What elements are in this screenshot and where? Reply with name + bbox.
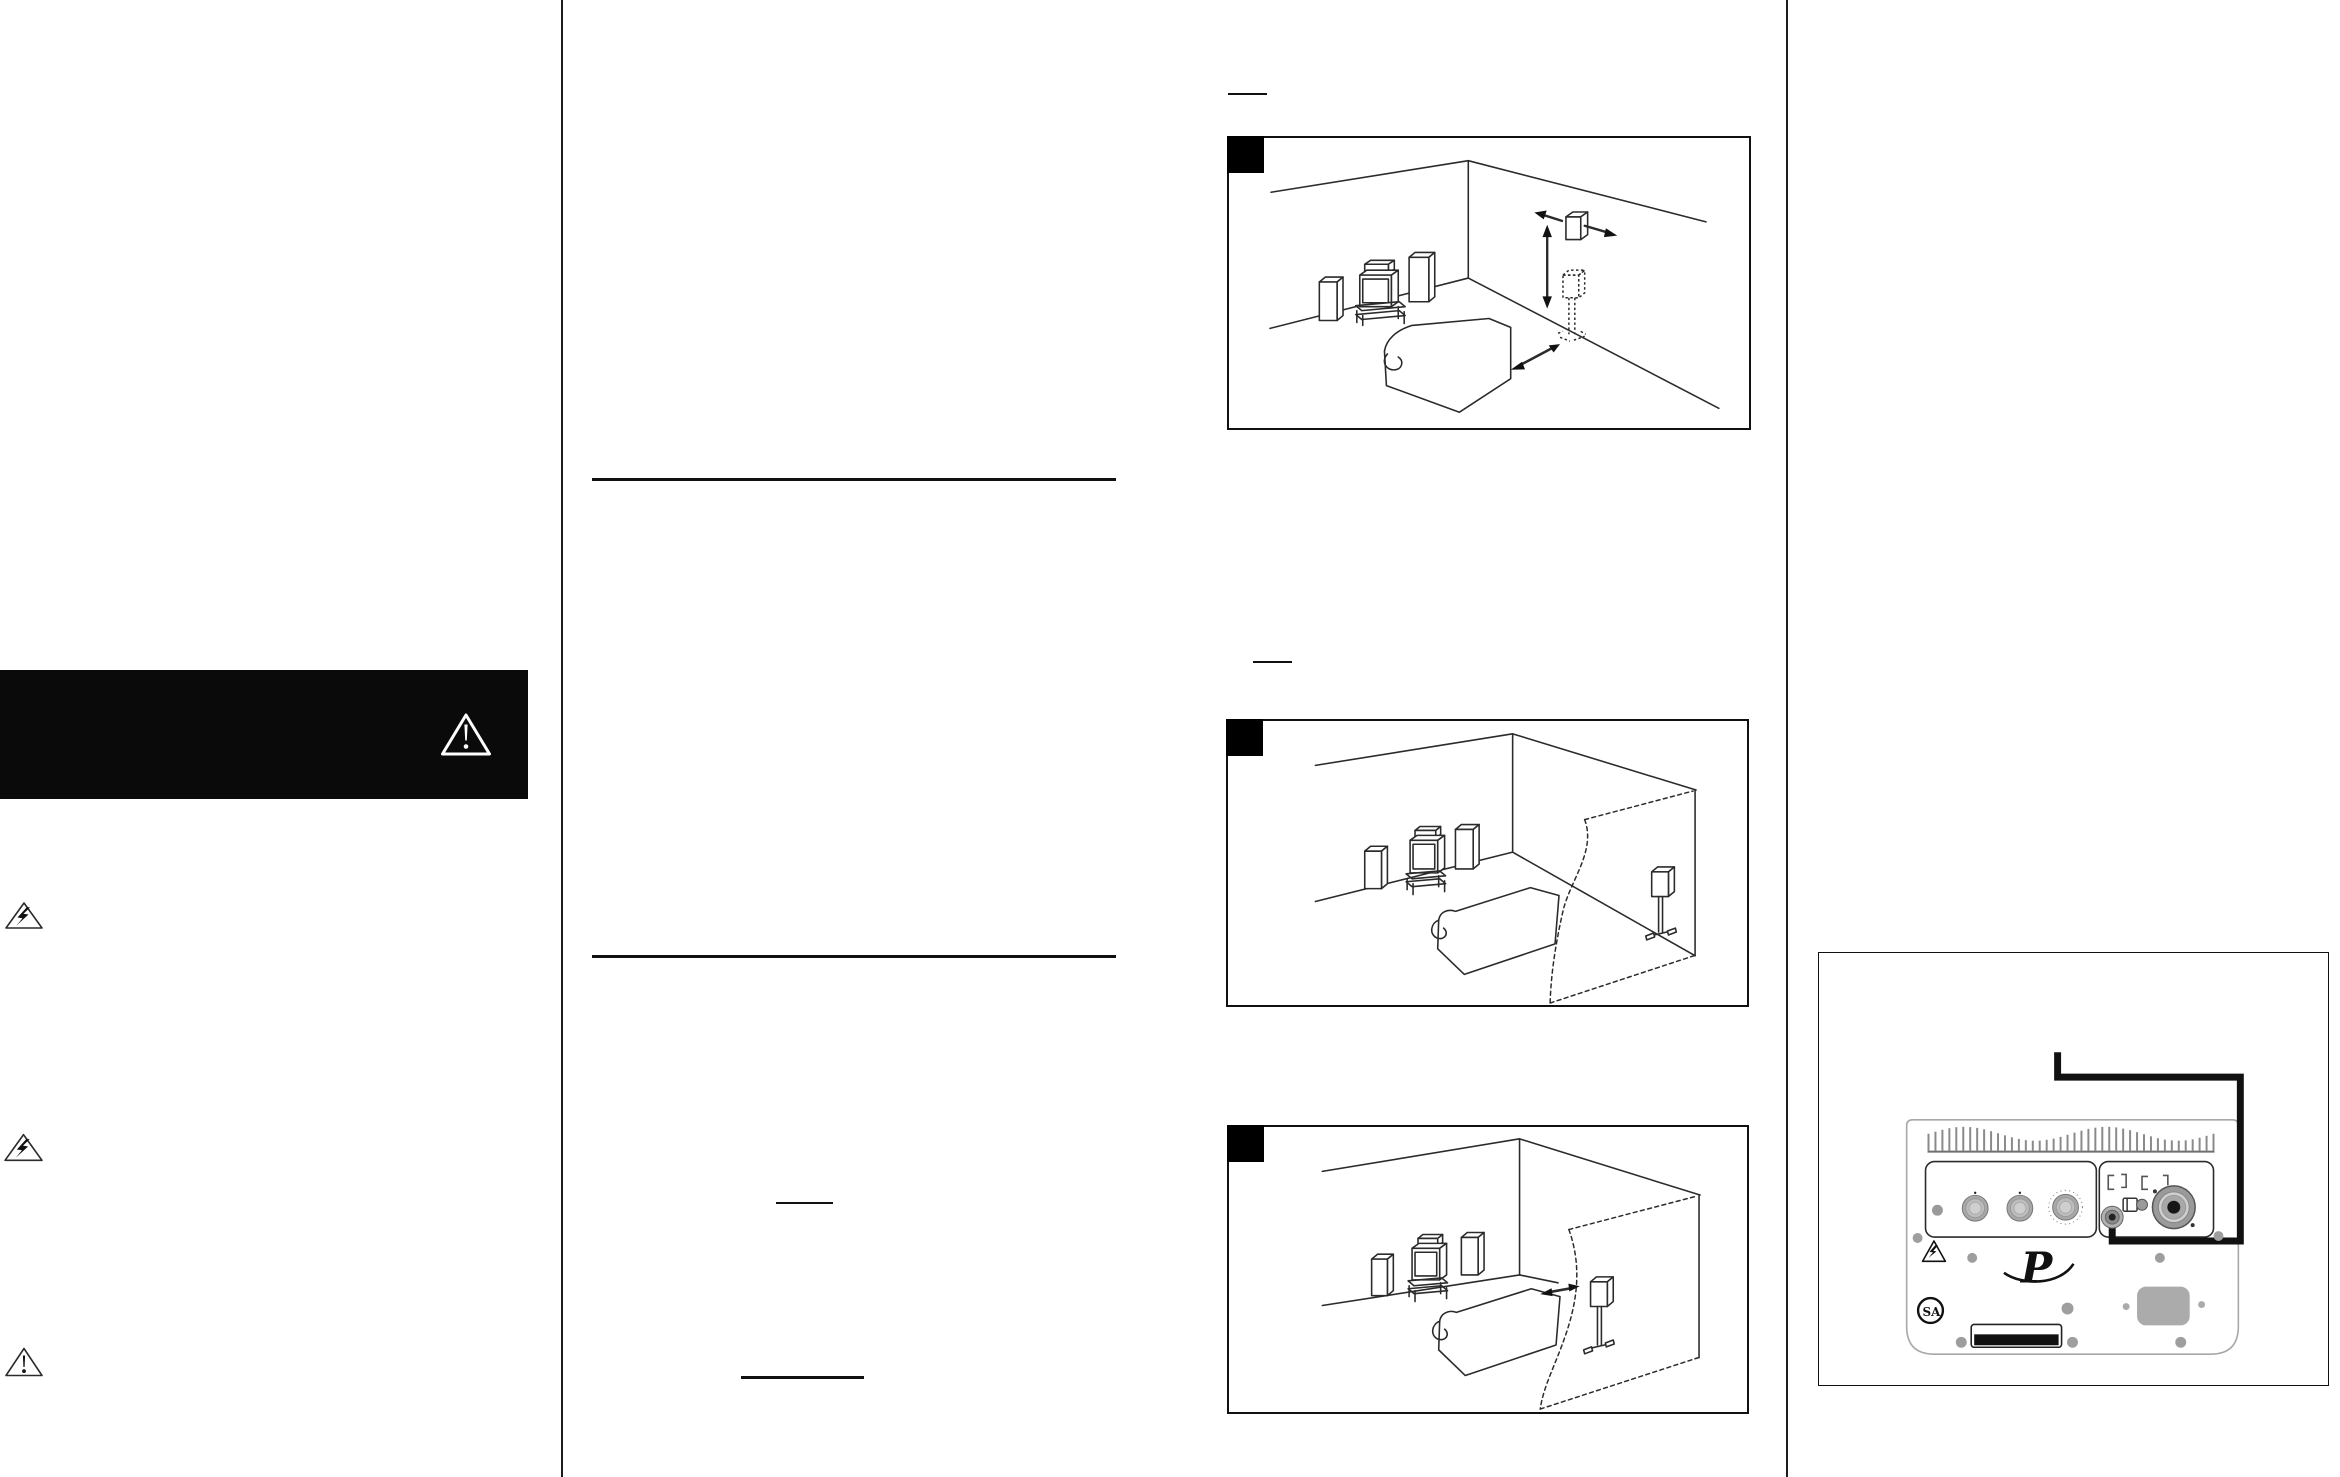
section-rule [592,955,1116,958]
figure-1-art [1229,138,1749,428]
subwoofer-panel-art: P SA [1819,953,2327,1384]
figure-heading-underline [1228,93,1267,95]
stand-speaker [1646,867,1677,940]
underline-mark [776,1202,833,1204]
figure-stand-side-placement [1227,1125,1749,1414]
sofa [1433,1289,1560,1376]
figure-number-block [1226,719,1263,756]
wall-cutaway-dashes [1540,1196,1698,1409]
sofa [1384,319,1510,413]
sofa [1432,888,1559,975]
figure-heading-underline [1253,661,1292,663]
figure-2-art [1228,721,1747,1005]
placement-arrows [1511,211,1618,370]
stand-speaker [1584,1277,1615,1354]
line-in-jack [2101,1206,2123,1228]
warning-triangle-icon [440,712,492,757]
section-rule [592,478,1116,481]
front-speaker-right [1455,825,1479,869]
figure-number-block [1227,136,1264,173]
caution-icon [4,1346,44,1378]
shock-hazard-icon [4,901,44,931]
front-speaker-left [1319,277,1343,320]
tv-on-stand [1356,260,1405,325]
certification-letters: SA [1923,1305,1942,1319]
brand-logo-letter: P [2020,1244,2054,1293]
warning-banner [0,670,528,799]
figure-wall-placement [1227,136,1751,430]
column-divider-left [561,0,563,1477]
figure-subwoofer-panel: P SA [1818,952,2329,1386]
tv-on-stand [1406,827,1445,895]
figure-stand-rear-placement [1226,719,1749,1007]
knob-with-scale [2049,1190,2083,1224]
status-dot [1932,1205,1943,1216]
label-plate [1971,1324,2061,1347]
front-speaker-right [1409,252,1435,301]
high-level-connector [2152,1186,2195,1229]
underline-mark [741,1376,864,1379]
shock-hazard-icon [3,1132,44,1164]
figure-3-art [1229,1127,1747,1412]
front-speaker-left [1365,846,1388,888]
wall-cutaway-dashes [1550,791,1694,1003]
manual-page: P SA [0,0,2340,1477]
front-speaker-left [1372,1254,1394,1295]
column-divider-right [1786,0,1788,1477]
front-speaker-right [1461,1233,1484,1275]
spacing-double-arrow [1540,1284,1579,1297]
phase-switch [2123,1198,2147,1211]
figure-number-block [1227,1125,1264,1162]
dotted-stand-position [1558,270,1586,341]
